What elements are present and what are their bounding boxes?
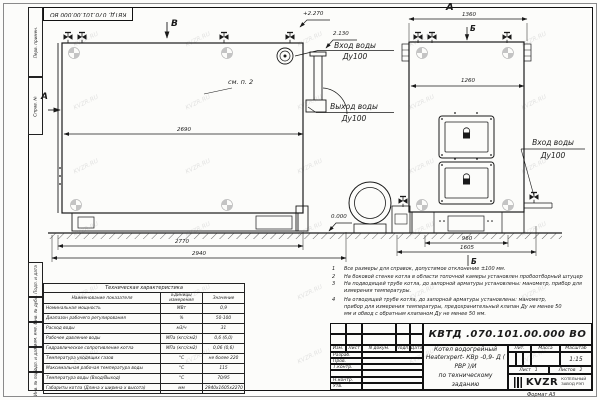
tb-cell <box>396 323 410 334</box>
cell-value: 115 <box>203 364 245 374</box>
tb-cell <box>346 334 362 345</box>
elevation-zero: 0.000 <box>331 214 347 220</box>
col-header-units: Единицы измерения <box>161 293 203 304</box>
note-number: 4 <box>332 297 340 319</box>
tb-scale-value: 1:15 <box>560 352 592 366</box>
dim-1605: 1605 <box>450 245 484 251</box>
note-4: 4 На отводящей трубе котла, до запорной … <box>332 297 562 319</box>
dim-2770: 2770 <box>162 239 202 245</box>
view-label-v: В <box>171 19 178 29</box>
org-name: КОТЕЛЬНЫЙ ЗАВОД РЭП <box>561 377 586 387</box>
table-title-row: Техническая характеристика <box>44 284 245 293</box>
corner-stamp-text: КВТД. 070.101.00.000 ВО <box>50 11 126 17</box>
tb-col-podp: Подп. <box>396 345 410 352</box>
table-row: Температура уходящих газов°Сне более 220 <box>44 354 245 364</box>
tb-scale-label: Масштаб <box>560 345 592 352</box>
note-text: На боковой стенке котла в области топочн… <box>344 274 587 281</box>
tb-col-izm: Изм. <box>330 345 346 352</box>
cell-value: 2940х1605х2270 <box>203 384 245 394</box>
corner-stamp: КВТД. 070.101.00.000 ВО <box>43 7 133 21</box>
cell-name: Максимальная рабочая температура воды <box>44 364 161 374</box>
cell-units: мм <box>161 384 203 394</box>
cell-units: % <box>161 314 203 324</box>
dim-960: 960 <box>450 236 484 242</box>
tb-col-ndokum: N докум. <box>362 345 396 352</box>
kvzr-logo-text: KVZR <box>526 377 558 388</box>
table-header-row: Наименование показателя Единицы измерени… <box>44 293 245 304</box>
tb-cell <box>410 334 423 345</box>
tb-cell <box>410 323 423 334</box>
note-number: 1 <box>332 266 340 273</box>
cell-name: Номинальная мощность <box>44 304 161 314</box>
tb-product-name: Котел водогрейный Heaterxpert- КВр -0,9-… <box>423 345 508 390</box>
note-text: На отводящей трубе котла, до запорной ар… <box>344 297 562 319</box>
strip-vzam-inv: Взам. инв. № <box>28 322 43 347</box>
strip-label: Инв. № подл. <box>33 367 38 396</box>
tb-cell <box>362 370 423 377</box>
cell-units: МВт <box>161 304 203 314</box>
tb-mass-label: Масса <box>531 345 560 352</box>
table-row: Рабочее давление водыМПа (кгс/см2)0,6 (6… <box>44 334 245 344</box>
cell-units: МПа (кгс/см2) <box>161 334 203 344</box>
tb-cell <box>396 334 410 345</box>
strip-label: Справ. № <box>33 96 38 116</box>
cell-name: Диапазон рабочего регулирования <box>44 314 161 324</box>
tb-cell <box>346 323 362 334</box>
sheet-value: 1 <box>535 368 538 373</box>
strip-label: Подп. и дата <box>33 265 38 294</box>
strip-inv-dubl: Инв. № дубл. <box>28 297 43 322</box>
cell-value: 50-100 <box>203 314 245 324</box>
table-row: Номинальная мощностьМВт0,9 <box>44 304 245 314</box>
cell-name: Расход воды <box>44 324 161 334</box>
cell-value: 70/95 <box>203 374 245 384</box>
sheets-value: 2 <box>579 368 582 373</box>
tb-lit-cell <box>523 352 531 366</box>
sheet-label: Лист <box>519 368 530 373</box>
dim-2940: 2940 <box>179 251 219 257</box>
tb-sheets: Листов 2 <box>549 366 592 374</box>
tb-col-data: Дата <box>410 345 423 352</box>
tb-cell <box>330 334 346 345</box>
tb-lit-cell <box>516 352 523 366</box>
strip-sprav-no: Справ. № <box>28 77 43 135</box>
tech-table: Техническая характеристика Наименование … <box>43 283 244 394</box>
strip-podp-data-1: Подп. и дата <box>28 262 43 297</box>
elevation-top: +2.270 <box>303 11 323 17</box>
note-number: 2 <box>332 274 340 281</box>
tb-org-cell: KVZR КОТЕЛЬНЫЙ ЗАВОД РЭП <box>508 374 592 390</box>
col-header-value: Значение <box>203 293 245 304</box>
tb-row-utv: Утв. <box>330 383 362 390</box>
kvzr-logo-icon <box>514 377 523 388</box>
tb-lit-cell <box>508 352 516 366</box>
tb-mass-value <box>531 352 560 366</box>
cell-value: 0,06 (0,6) <box>203 344 245 354</box>
tb-col-list: Лист <box>346 345 362 352</box>
inlet-right-line2: Ду100 <box>520 151 586 160</box>
cell-units: °С <box>161 374 203 384</box>
table-row: Максимальная рабочая температура воды°С1… <box>44 364 245 374</box>
cell-units: °С <box>161 364 203 374</box>
cell-units: °С <box>161 354 203 364</box>
center-marks <box>69 48 514 211</box>
section-label-a-side: А <box>41 92 48 102</box>
dim-1360: 1360 <box>452 12 486 18</box>
cell-name: Габариты котла (Длина х ширина х высота) <box>44 384 161 394</box>
dim-1260: 1260 <box>451 78 485 84</box>
note-2: 2 На боковой стенке котла в области топо… <box>332 274 587 281</box>
cell-value: не более 220 <box>203 354 245 364</box>
tb-cell <box>362 383 423 390</box>
note-3: 3 На подводящей трубе котла, до запорной… <box>332 281 587 296</box>
outlet-label-line2: Ду100 <box>314 114 394 123</box>
product-line1: Котел водогрейный <box>434 346 497 355</box>
outlet-label-line1: Выход воды <box>314 102 394 111</box>
cell-units: МПа (кгс/см2) <box>161 344 203 354</box>
tb-cell <box>362 323 396 334</box>
format-label: Формат А3 <box>527 392 555 398</box>
table-row: Расход водым3/ч31 <box>44 324 245 334</box>
cell-value: 0,6 (6,0) <box>203 334 245 344</box>
table-row: Температура воды (Вход/Выход)°С70/95 <box>44 374 245 384</box>
inlet-label-line2: Ду100 <box>316 52 394 61</box>
cell-units: м3/ч <box>161 324 203 334</box>
inlet-right-line1: Вход воды <box>520 138 586 147</box>
see-note-label: см. п. 2 <box>228 78 253 86</box>
strip-label: Перв. примен. <box>33 26 38 57</box>
org-line2: ЗАВОД РЭП <box>561 382 586 387</box>
col-header-name: Наименование показателя <box>44 293 161 304</box>
table-row: Гидравлическое сопротивление котлаМПа (к… <box>44 344 245 354</box>
section-label-b-top: Б <box>470 24 476 33</box>
sheets-label: Листов <box>559 368 576 373</box>
tb-row-blank <box>330 370 362 377</box>
drawing-sheet: KVZR.RUKVZR.RUKVZR.RUKVZR.RUKVZR.RU KVZR… <box>0 0 600 400</box>
elevation-inlet: 2.130 <box>333 31 349 37</box>
table-row: Диапазон рабочего регулирования%50-100 <box>44 314 245 324</box>
fan <box>329 182 410 233</box>
product-line2: Heaterxpert- КВр -0,9- Д ( РВР )/И <box>425 354 506 371</box>
cell-name: Гидравлическое сопротивление котла <box>44 344 161 354</box>
note-number: 3 <box>332 281 340 296</box>
table-row: Габариты котла (Длина х ширина х высота)… <box>44 384 245 394</box>
strip-perv-primen: Перв. примен. <box>28 7 43 77</box>
tb-doc-number: КВТД .070.101.00.000 ВО <box>423 323 592 345</box>
tb-cell <box>330 323 346 334</box>
tb-sheet: Лист 1 <box>508 366 549 374</box>
cell-name: Температура воды (Вход/Выход) <box>44 374 161 384</box>
cell-name: Температура уходящих газов <box>44 354 161 364</box>
ground-line <box>48 233 562 239</box>
product-line3: по техническому заданию <box>425 372 506 389</box>
strip-inv-podl: Инв. № подл. <box>28 372 43 391</box>
tb-lit-label: Лит. <box>508 345 531 352</box>
note-text: Все размеры для справок, допустимое откл… <box>344 266 587 273</box>
tb-cell <box>362 334 396 345</box>
dim-2690: 2690 <box>164 127 204 133</box>
table-title: Техническая характеристика <box>44 284 245 293</box>
section-label-b-bottom: Б <box>471 257 477 266</box>
cell-value: 31 <box>203 324 245 334</box>
note-text: На подводящей трубе котла, до запорной а… <box>344 281 587 296</box>
inlet-label-line1: Вход воды <box>316 41 394 50</box>
cell-name: Рабочее давление воды <box>44 334 161 344</box>
note-1: 1 Все размеры для справок, допустимое от… <box>332 266 587 273</box>
cell-value: 0,9 <box>203 304 245 314</box>
